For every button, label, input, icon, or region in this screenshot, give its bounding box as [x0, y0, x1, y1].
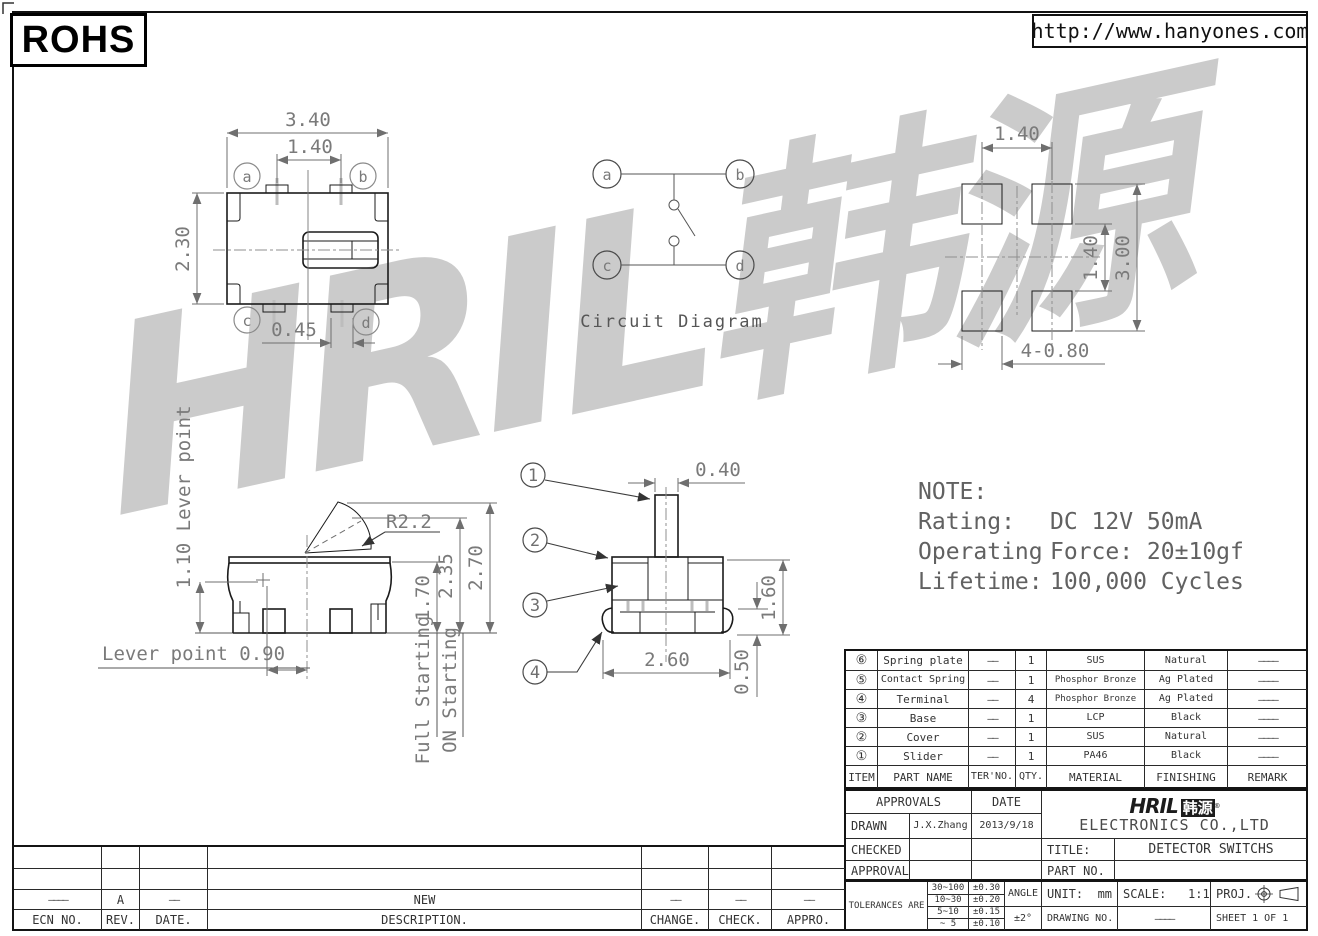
scale-cell: SCALE: 1:1: [1117, 882, 1210, 906]
front-view: 0.40 2.60 1.60 0.50 1 2 3 4: [521, 459, 790, 697]
part-name: Spring plate: [877, 651, 968, 670]
svg-text:1.60: 1.60: [758, 575, 780, 621]
revision-table: ———— A —— NEW —— —— —— ECN NO. REV. DATE…: [12, 845, 846, 931]
drawing-title: DETECTOR SWITCHS: [1114, 838, 1307, 860]
projection-symbol: [1254, 885, 1302, 903]
rev-header: ECN NO.: [14, 909, 101, 930]
dim-pcb-pitch-x: 1.40: [994, 123, 1040, 145]
svg-text:d: d: [735, 257, 744, 275]
part-name: Cover: [877, 727, 968, 746]
title-block: APPROVALS DATE HRIL韩源® ELECTRONICS CO.,L…: [844, 789, 1308, 881]
unit-cell: UNIT: mm: [1041, 882, 1117, 906]
rohs-logo: ROHS: [10, 13, 147, 67]
pcb-layout: 1.40 1.40 3.00 4-0.80: [938, 123, 1145, 370]
rev-letter: A: [101, 889, 139, 909]
dim-lever-offset: Lever point 0.90: [102, 643, 285, 665]
rev-header: CHECK.: [708, 909, 771, 930]
part-item: ④: [846, 689, 877, 708]
drawn-by: J.X.Zhang: [909, 813, 971, 838]
drawn-date: 2013/9/18: [971, 813, 1041, 838]
rev-ecn: ————: [14, 889, 101, 909]
part-item: ⑥: [846, 651, 877, 670]
svg-text:0.40: 0.40: [695, 459, 741, 481]
dim-top-width: 3.40: [285, 109, 331, 131]
title-label: TITLE:: [1041, 838, 1114, 860]
company-logo-cjk: 韩源: [1181, 799, 1215, 817]
company-name: ELECTRONICS CO.,LTD: [1079, 818, 1270, 833]
dim-lever-height: 1.10 Lever point: [173, 405, 195, 588]
svg-text:1: 1: [528, 466, 538, 486]
svg-text:3: 3: [530, 596, 540, 616]
rev-header: REV.: [101, 909, 139, 930]
parts-header: PART NAME: [877, 765, 968, 788]
svg-text:2.60: 2.60: [644, 649, 690, 671]
top-view: 3.40 1.40 2.30 0.45 a b c d: [172, 109, 400, 348]
side-view: R2.2 1.10 Lever point 1.70 2.35 2.70 Ful…: [98, 405, 497, 764]
tolerance-block: TOLERANCES ARE 30~100 ±0.30 10~30 ±0.20 …: [844, 880, 1308, 931]
svg-text:c: c: [602, 257, 611, 275]
rev-header: CHANGE.: [641, 909, 708, 930]
sheet-cell: SHEET 1 OF 1: [1210, 906, 1307, 930]
svg-text:b: b: [358, 168, 367, 186]
part-item: ②: [846, 727, 877, 746]
part-no-label: PART NO.: [1041, 860, 1114, 880]
part-name: Contact Spring: [877, 670, 968, 689]
rev-header: APPRO.: [771, 909, 845, 930]
label-on-starting: ON Starting: [439, 627, 461, 753]
part-item: ⑤: [846, 670, 877, 689]
dim-pin-pitch: 1.40: [287, 136, 333, 158]
parts-header: ITEM: [846, 765, 877, 788]
label-full-starting: Full Starting: [412, 616, 434, 765]
date-header: DATE: [971, 791, 1041, 813]
drawn-label: DRAWN: [846, 813, 909, 838]
dim-pcb-height: 3.00: [1112, 235, 1134, 281]
note-title: NOTE:: [918, 479, 987, 505]
dim-top-depth: 2.30: [172, 226, 194, 272]
company-logo: HRIL韩源® ELECTRONICS CO.,LTD: [1041, 791, 1307, 838]
svg-text:d: d: [361, 314, 370, 332]
svg-text:a: a: [242, 168, 251, 186]
parts-header: TER'NO.: [968, 765, 1015, 788]
part-name: Terminal: [877, 689, 968, 708]
dim-pcb-pitch-y: 1.40: [1080, 235, 1102, 281]
svg-text:a: a: [602, 166, 611, 184]
website-url: http://www.hanyones.com: [1032, 14, 1308, 48]
rev-header: DATE.: [139, 909, 207, 930]
svg-text:b: b: [735, 166, 744, 184]
svg-text:c: c: [242, 312, 251, 330]
approvals-header: APPROVALS: [846, 791, 971, 813]
note-block: NOTE: Rating:DC 12V 50mA OperatingForce:…: [918, 477, 1308, 597]
angle-value: ±2°: [1004, 906, 1041, 930]
tolerances-label: TOLERANCES ARE: [846, 882, 927, 930]
part-item: ③: [846, 708, 877, 727]
rev-description: NEW: [207, 889, 641, 909]
svg-text:2.35: 2.35: [435, 553, 457, 599]
circuit-caption: Circuit Diagram: [580, 312, 764, 332]
part-name: Slider: [877, 746, 968, 765]
drawing-sheet: HRIL韩源: [0, 0, 1318, 936]
dim-pcb-pads: 4-0.80: [1021, 340, 1090, 362]
part-name: Base: [877, 708, 968, 727]
rev-date: ——: [139, 889, 207, 909]
svg-text:2.70: 2.70: [465, 545, 487, 591]
parts-table: ⑥ Spring plate —— 1 SUS Natural ———— ⑤ C…: [844, 649, 1308, 789]
checked-label: CHECKED: [846, 838, 909, 860]
svg-text:4: 4: [530, 663, 540, 683]
part-item: ①: [846, 746, 877, 765]
parts-header: REMARK: [1227, 765, 1307, 788]
svg-text:1.70: 1.70: [412, 575, 434, 621]
company-logo-text: HRIL: [1129, 794, 1177, 818]
parts-header: QTY.: [1015, 765, 1046, 788]
circuit-diagram: a b c d Circuit Diagram: [580, 160, 764, 332]
dim-lever-radius: R2.2: [386, 511, 432, 533]
projection-cell: PROJ.: [1210, 882, 1307, 906]
part-no-value: [1114, 860, 1307, 880]
svg-text:0.50: 0.50: [731, 649, 753, 695]
drawing-no-label: DRAWING NO.: [1041, 906, 1117, 930]
checked-date: [971, 838, 1041, 860]
parts-header: MATERIAL: [1046, 765, 1144, 788]
angle-label: ANGLE: [1004, 882, 1041, 906]
dim-pad-width: 0.45: [271, 319, 317, 341]
drawing-no-value: ————: [1117, 906, 1210, 930]
parts-header: FINISHING: [1144, 765, 1227, 788]
approvals-label: APPROVALS: [846, 860, 909, 880]
checked-by: [909, 838, 971, 860]
rev-header: DESCRIPTION.: [207, 909, 641, 930]
svg-text:2: 2: [530, 531, 540, 551]
